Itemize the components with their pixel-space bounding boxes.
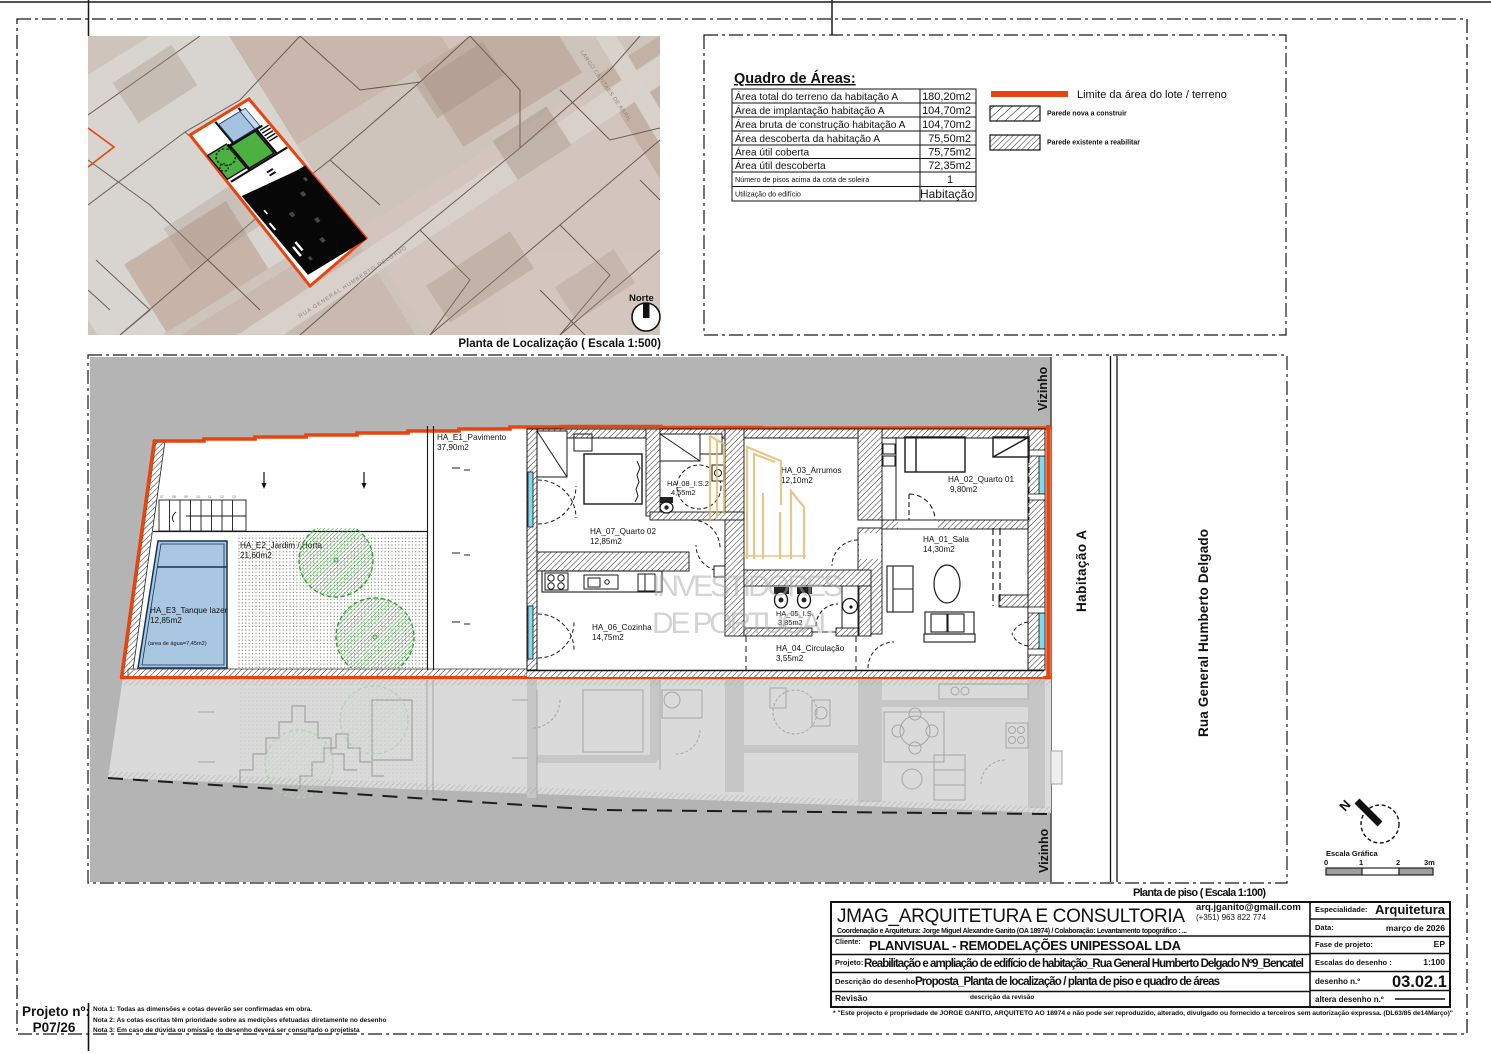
svg-text:HA_07_Quarto 02: HA_07_Quarto 02 xyxy=(590,527,656,536)
svg-text:(+351) 963 822 774: (+351) 963 822 774 xyxy=(1196,913,1267,922)
svg-text:altera desenho n.º: altera desenho n.º xyxy=(1315,995,1384,1004)
svg-text:3m: 3m xyxy=(1424,858,1435,867)
svg-text:Área útil coberta: Área útil coberta xyxy=(735,146,810,159)
svg-text:4,55m2: 4,55m2 xyxy=(671,488,696,497)
svg-text:0: 0 xyxy=(1324,858,1328,867)
svg-text:Cliente:: Cliente: xyxy=(835,939,861,946)
svg-text:2: 2 xyxy=(1396,858,1400,867)
svg-text:Área total do terreno da habit: Área total do terreno da habitação A xyxy=(735,90,898,103)
svg-text:13: 13 xyxy=(232,495,236,499)
svg-text:Norte: Norte xyxy=(629,293,654,304)
svg-text:Nota 2: As cotas escritas têm: Nota 2: As cotas escritas têm prioridade… xyxy=(93,1017,386,1024)
svg-text:Proposta_Planta de localização: Proposta_Planta de localização / planta … xyxy=(915,976,1220,988)
svg-text:07: 07 xyxy=(160,495,164,499)
svg-text:PLANVISUAL - REMODELAÇÕES UNIP: PLANVISUAL - REMODELAÇÕES UNIPESSOAL LDA xyxy=(869,938,1182,953)
svg-text:Vizinho: Vizinho xyxy=(1036,366,1050,411)
svg-text:12,10m2: 12,10m2 xyxy=(781,476,813,485)
svg-text:HA_E1_Pavimento: HA_E1_Pavimento xyxy=(437,433,507,442)
svg-text:Nota 3: Em caso de dúvida ou o: Nota 3: Em caso de dúvida ou omissão do … xyxy=(93,1027,360,1034)
svg-text:Utilização do edifício: Utilização do edifício xyxy=(735,190,801,199)
svg-text:75,50m2: 75,50m2 xyxy=(928,133,971,145)
svg-text:Parede nova a construir: Parede nova a construir xyxy=(1047,111,1127,118)
svg-text:1:100: 1:100 xyxy=(1423,957,1445,967)
svg-text:Área descoberta da habitação A: Área descoberta da habitação A xyxy=(735,132,880,145)
svg-text:Planta de Localização ( Escala: Planta de Localização ( Escala 1:500) xyxy=(458,338,661,350)
svg-text:09: 09 xyxy=(184,495,188,499)
svg-text:HA_03_Arrumos: HA_03_Arrumos xyxy=(781,466,842,475)
svg-text:Especialidade:: Especialidade: xyxy=(1315,905,1368,914)
svg-text:Vizinho: Vizinho xyxy=(1037,828,1051,873)
svg-text:HA_02_Quarto 01: HA_02_Quarto 01 xyxy=(948,475,1014,484)
svg-text:Projeto nº:: Projeto nº: xyxy=(22,1004,90,1019)
svg-text:Coordenação e Arquitetura: Jor: Coordenação e Arquitetura: Jorge Miguel … xyxy=(837,928,1187,935)
svg-text:desenho n.º: desenho n.º xyxy=(1315,977,1360,986)
svg-text:JMAG_ARQUITETURA E CONSULTORIA: JMAG_ARQUITETURA E CONSULTORIA xyxy=(837,906,1185,927)
svg-text:Área de implantação habitação: Área de implantação habitação A xyxy=(735,104,885,117)
svg-text:Nota 1: Todas as dimensões e c: Nota 1: Todas as dimensões e cotas dever… xyxy=(93,1006,312,1013)
svg-text:180,20m2: 180,20m2 xyxy=(922,91,971,103)
svg-text:Limite da área do lote / terre: Limite da área do lote / terreno xyxy=(1077,89,1227,101)
svg-text:arq.jganito@gmail.com: arq.jganito@gmail.com xyxy=(1196,902,1301,913)
svg-text:Número de pisos acima da cota: Número de pisos acima da cota de soleira xyxy=(735,175,869,184)
svg-text:INVESTIDORES: INVESTIDORES xyxy=(652,570,845,603)
svg-text:72,35m2: 72,35m2 xyxy=(928,160,971,172)
svg-text:N: N xyxy=(1336,797,1353,814)
svg-text:HA_E3_Tanque lazer: HA_E3_Tanque lazer xyxy=(150,606,228,615)
svg-text:9,80m2: 9,80m2 xyxy=(950,485,978,494)
svg-text:descrição da revisão: descrição da revisão xyxy=(970,994,1034,1001)
svg-text:Reabilitação e ampliação de ed: Reabilitação e ampliação de edifício de … xyxy=(864,958,1304,970)
svg-text:12,85m2: 12,85m2 xyxy=(590,537,622,546)
svg-text:Habitação A: Habitação A xyxy=(1074,530,1089,612)
svg-text:12: 12 xyxy=(220,495,224,499)
svg-text:03.02.1: 03.02.1 xyxy=(1392,973,1447,991)
svg-text:Revisão: Revisão xyxy=(835,993,868,1003)
svg-text:março de 2026: março de 2026 xyxy=(1386,923,1445,933)
svg-text:1: 1 xyxy=(1359,858,1363,867)
svg-text:Parede existente a reabilitar: Parede existente a reabilitar xyxy=(1047,140,1140,147)
svg-text:21,60m2: 21,60m2 xyxy=(240,551,272,560)
svg-text:DE PORTUGAL: DE PORTUGAL xyxy=(652,607,837,640)
svg-text:Arquitetura: Arquitetura xyxy=(1375,902,1446,917)
svg-text:08: 08 xyxy=(172,495,176,499)
svg-text:104,70m2: 104,70m2 xyxy=(922,119,971,131)
svg-text:10: 10 xyxy=(196,495,200,499)
svg-text:Projeto:: Projeto: xyxy=(835,958,863,967)
svg-text:Área útil descoberta: Área útil descoberta xyxy=(735,159,826,172)
svg-text:37,90m2: 37,90m2 xyxy=(437,443,469,452)
svg-text:* "Este projecto é propriedade: * "Este projecto é propriedade de JORGE … xyxy=(833,1010,1453,1017)
svg-text:12,85m2: 12,85m2 xyxy=(150,616,182,625)
svg-text:Planta de piso ( Escala 1:100): Planta de piso ( Escala 1:100) xyxy=(1133,887,1266,899)
svg-text:104,70m2: 104,70m2 xyxy=(922,105,971,117)
svg-text:Descrição do desenho:: Descrição do desenho: xyxy=(835,977,918,986)
svg-text:P07/26: P07/26 xyxy=(33,1020,76,1035)
svg-text:14,75m2: 14,75m2 xyxy=(592,633,624,642)
svg-text:HA_08_I.S.2: HA_08_I.S.2 xyxy=(667,479,709,488)
svg-text:75,75m2: 75,75m2 xyxy=(928,147,971,159)
svg-text:Fase de projeto:: Fase de projeto: xyxy=(1315,940,1373,949)
svg-text:Quadro de Áreas:: Quadro de Áreas: xyxy=(734,70,856,87)
svg-text:Rua General Humberto Delgado: Rua General Humberto Delgado xyxy=(1196,529,1211,737)
svg-text:3,55m2: 3,55m2 xyxy=(776,654,804,663)
svg-text:1: 1 xyxy=(947,174,953,186)
svg-text:HA_06_Cozinha: HA_06_Cozinha xyxy=(592,623,652,632)
svg-text:HA_01_Sala: HA_01_Sala xyxy=(923,535,969,544)
svg-text:HA_04_Circulação: HA_04_Circulação xyxy=(776,644,845,653)
svg-text:11: 11 xyxy=(208,495,212,499)
svg-text:Área bruta de construção habit: Área bruta de construção habitação A xyxy=(735,118,906,131)
svg-text:14,30m2: 14,30m2 xyxy=(923,545,955,554)
svg-text:Habitação: Habitação xyxy=(920,187,974,201)
svg-text:(area de água=7,45m2): (area de água=7,45m2) xyxy=(148,641,207,647)
svg-text:Data:: Data: xyxy=(1315,923,1334,932)
svg-text:EP: EP xyxy=(1434,939,1446,949)
svg-text:Escalas do desenho :: Escalas do desenho : xyxy=(1315,958,1392,967)
svg-text:Escala Gráfica: Escala Gráfica xyxy=(1326,849,1379,858)
